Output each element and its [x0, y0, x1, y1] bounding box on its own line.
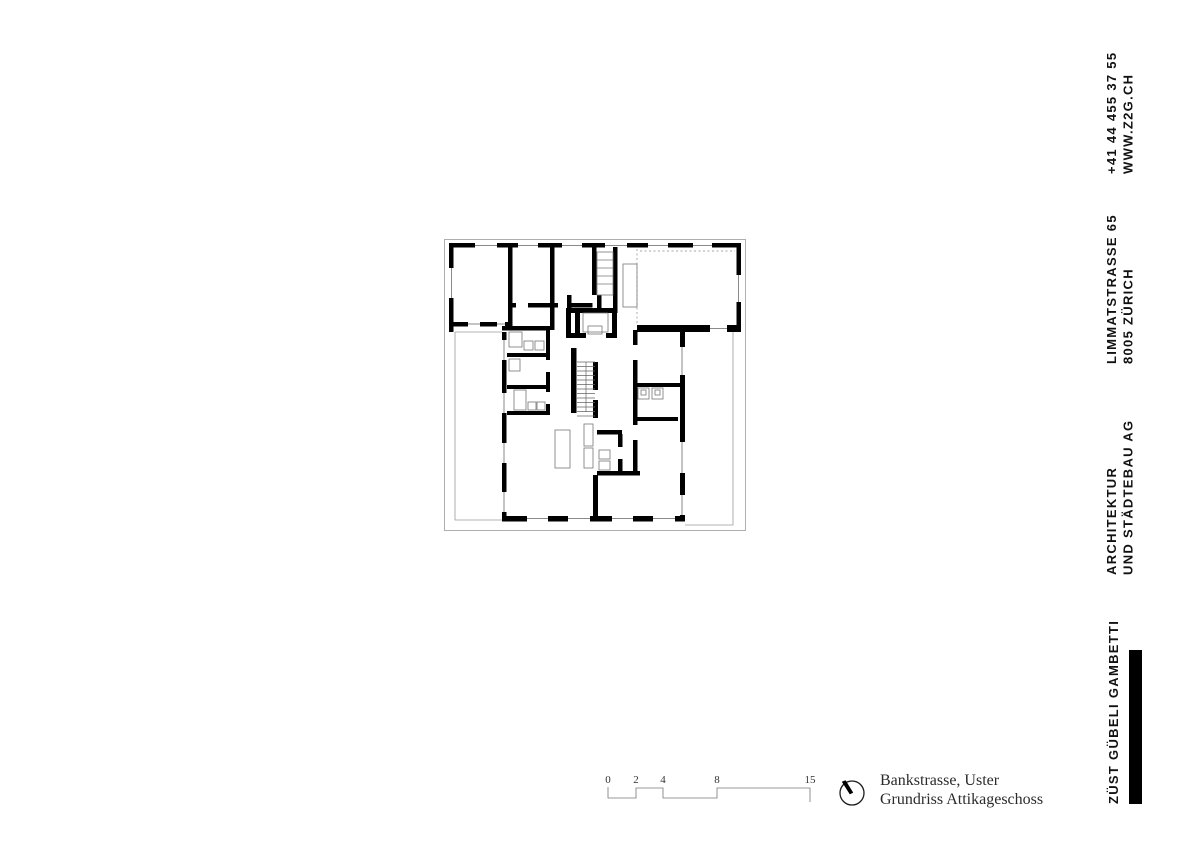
drawing-title: Grundriss Attikageschoss: [880, 790, 1043, 809]
scale-label-4: 4: [660, 774, 666, 786]
floor-plan-drawing: [443, 238, 747, 533]
drawing-sheet: 0 2 4 8 15 Bankstrasse, Uster Grundriss …: [0, 0, 1200, 848]
stair-icon: [577, 362, 595, 416]
firm-type-line2: UND STÄDTEBAU AG: [1121, 420, 1136, 575]
firm-type-block: ARCHITEKTURUND STÄDTEBAU AG: [1104, 430, 1137, 575]
elevator-icon: [583, 313, 608, 334]
duct-shaft: [597, 252, 613, 295]
scale-label-0: 0: [605, 774, 611, 786]
dashed-lines: [637, 249, 735, 324]
title-block: Bankstrasse, Uster Grundriss Attikagesch…: [880, 771, 1043, 809]
scale-bar: 0 2 4 8 15: [596, 766, 826, 810]
scale-label-15: 15: [805, 774, 817, 786]
contact-block: +41 44 455 37 55WWW.Z2G.CH: [1104, 60, 1137, 174]
project-title: Bankstrasse, Uster: [880, 771, 1043, 790]
firm-type-line1: ARCHITEKTUR: [1104, 467, 1119, 575]
scale-label-8: 8: [714, 774, 720, 786]
walls: [449, 243, 741, 522]
address-block: LIMMATSTRASSE 658005 ZÜRICH: [1104, 216, 1137, 364]
logo-bar: [1129, 650, 1142, 804]
phone-number: +41 44 455 37 55: [1104, 52, 1119, 174]
website: WWW.Z2G.CH: [1121, 74, 1136, 174]
address-street: LIMMATSTRASSE 65: [1104, 214, 1119, 364]
north-arrow-icon: [834, 776, 872, 812]
firm-name: ZÜST GÜBELI GAMBETTI: [1106, 620, 1121, 804]
firm-name-block: ZÜST GÜBELI GAMBETTI: [1106, 638, 1123, 804]
scale-label-2: 2: [633, 774, 639, 786]
address-city: 8005 ZÜRICH: [1121, 268, 1136, 364]
